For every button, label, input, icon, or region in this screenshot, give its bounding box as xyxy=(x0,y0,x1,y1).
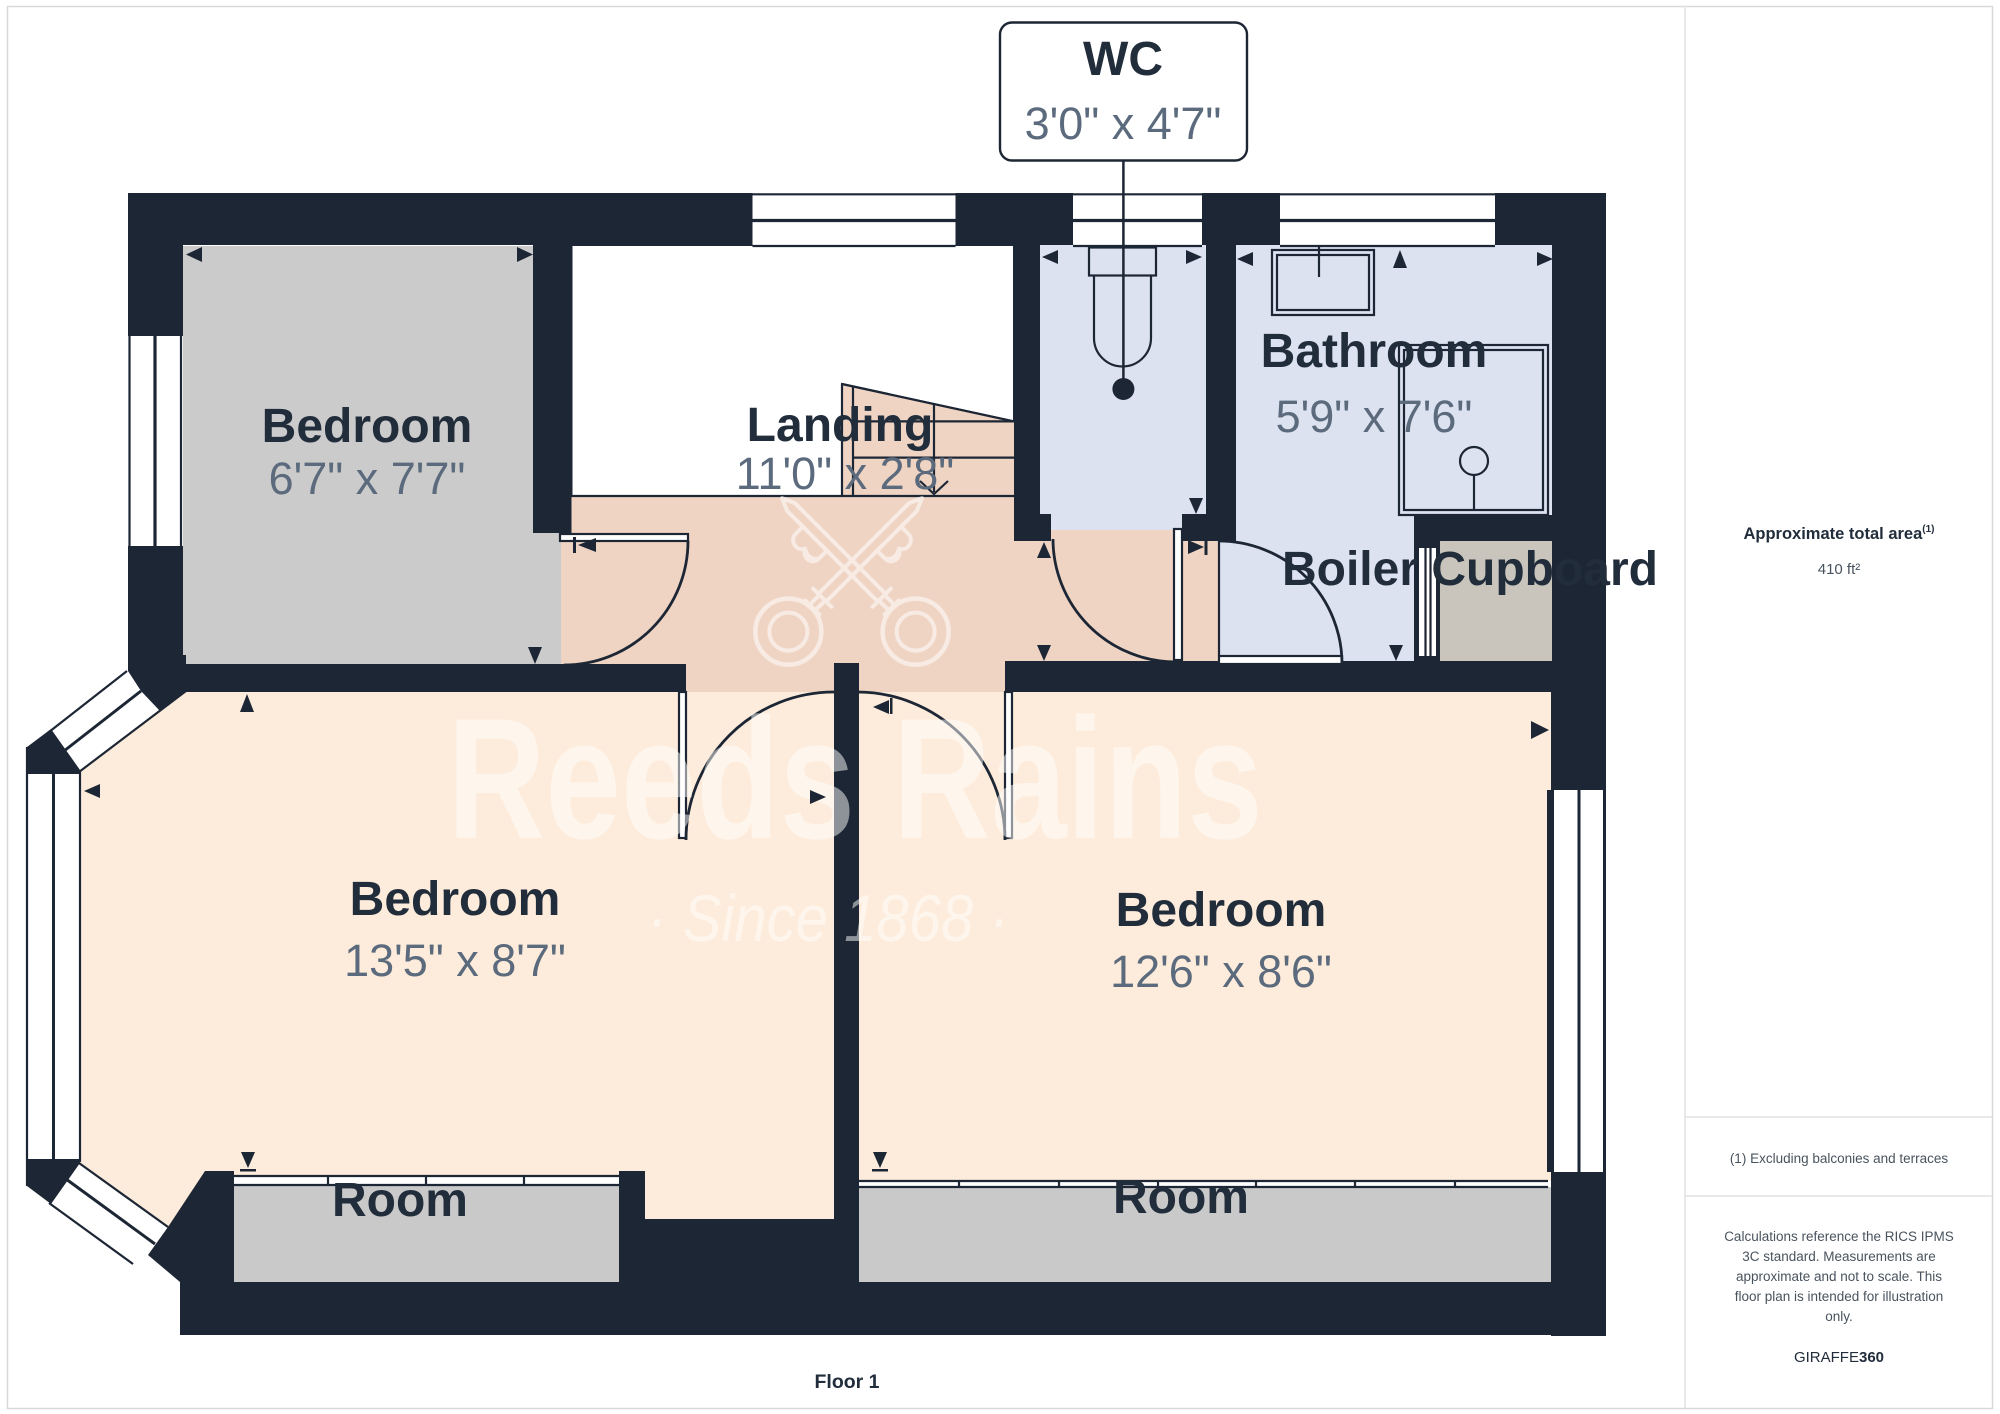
svg-text:Landing: Landing xyxy=(747,399,934,452)
svg-text:Bedroom: Bedroom xyxy=(350,873,561,926)
svg-text:Boiler Cupboard: Boiler Cupboard xyxy=(1282,543,1658,596)
svg-text:Bedroom: Bedroom xyxy=(1116,884,1327,937)
svg-text:· Since 1868 ·: · Since 1868 · xyxy=(647,883,1009,956)
svg-text:Calculations reference the RIC: Calculations reference the RICS IPMS xyxy=(1724,1229,1954,1244)
svg-text:GIRAFFE360: GIRAFFE360 xyxy=(1794,1349,1884,1366)
svg-text:Reeds Rains: Reeds Rains xyxy=(447,683,1263,875)
svg-text:11'0" x 2'8": 11'0" x 2'8" xyxy=(736,448,954,499)
svg-text:Floor 1: Floor 1 xyxy=(814,1371,879,1393)
svg-text:floor plan is intended for ill: floor plan is intended for illustration xyxy=(1735,1289,1944,1304)
svg-text:approximate and not to scale.: approximate and not to scale. This xyxy=(1736,1269,1942,1284)
svg-text:Room: Room xyxy=(332,1174,468,1227)
svg-text:WC: WC xyxy=(1083,33,1163,86)
svg-text:Bedroom: Bedroom xyxy=(262,400,473,453)
svg-text:Bathroom: Bathroom xyxy=(1261,325,1488,378)
svg-text:only.: only. xyxy=(1825,1309,1853,1324)
svg-text:3'0" x 4'7": 3'0" x 4'7" xyxy=(1025,98,1222,149)
svg-text:410 ft²: 410 ft² xyxy=(1818,561,1861,578)
svg-text:6'7" x 7'7": 6'7" x 7'7" xyxy=(269,453,466,504)
svg-text:(1) Excluding balconies and te: (1) Excluding balconies and terraces xyxy=(1730,1151,1949,1166)
svg-text:Room: Room xyxy=(1113,1171,1249,1224)
svg-text:5'9" x 7'6": 5'9" x 7'6" xyxy=(1276,391,1473,442)
svg-text:Approximate total area(1): Approximate total area(1) xyxy=(1743,524,1934,543)
svg-text:12'6" x 8'6": 12'6" x 8'6" xyxy=(1110,946,1332,997)
svg-text:13'5" x 8'7": 13'5" x 8'7" xyxy=(344,935,566,986)
svg-text:3C standard. Measurements are: 3C standard. Measurements are xyxy=(1742,1249,1936,1264)
